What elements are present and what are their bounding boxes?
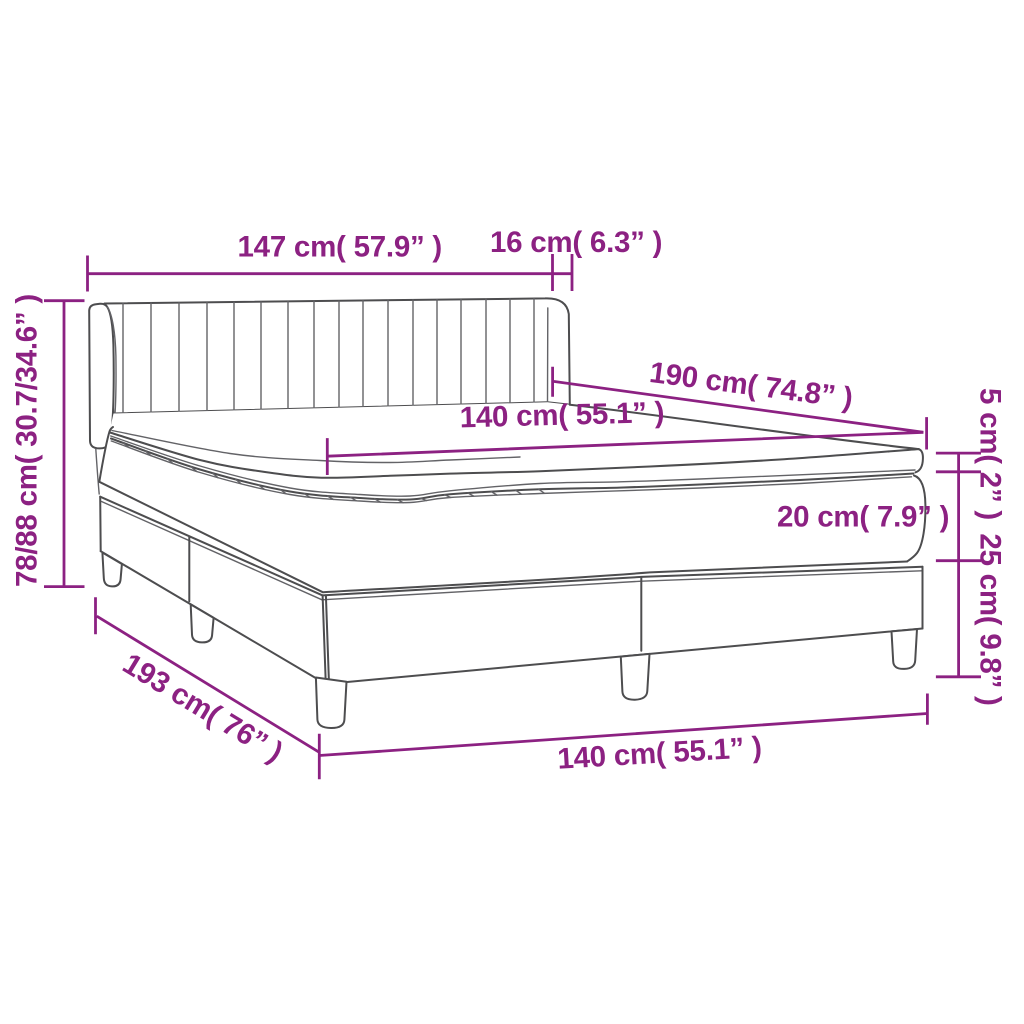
svg-text:20 cm( 7.9” ): 20 cm( 7.9” ) [777,501,949,534]
svg-text:78/88 cm( 30.7/34.6” ): 78/88 cm( 30.7/34.6” ) [11,294,44,587]
svg-text:16 cm( 6.3” ): 16 cm( 6.3” ) [490,226,662,259]
svg-text:25 cm( 9.8” ): 25 cm( 9.8” ) [974,533,1007,705]
svg-text:5 cm( 2” ): 5 cm( 2” ) [974,388,1007,520]
svg-text:147 cm( 57.9” ): 147 cm( 57.9” ) [238,231,443,264]
svg-text:140 cm( 55.1” ): 140 cm( 55.1” ) [459,396,664,434]
